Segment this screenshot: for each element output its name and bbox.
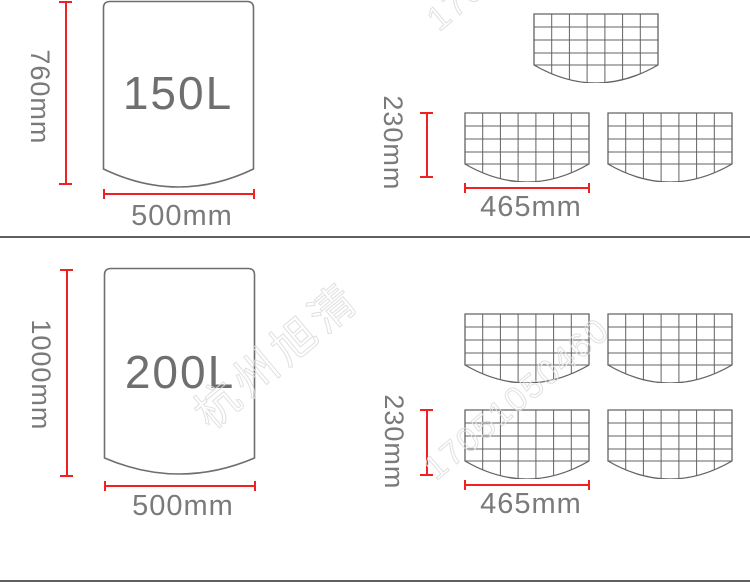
product-size-diagram: 150L 760mm 500mm 230mm [0, 0, 750, 582]
dim-cap [254, 481, 256, 491]
dim-line [66, 269, 68, 477]
dim-line [65, 1, 67, 185]
grid-panel [464, 112, 590, 182]
dim-cap [253, 189, 255, 199]
grid-width-label-465-top: 465mm [451, 192, 611, 224]
width-dim-label-500-top: 500mm [102, 201, 262, 233]
grid-panel [607, 409, 733, 479]
dim-cap [420, 409, 433, 411]
dim-line [464, 484, 590, 486]
dim-cap [59, 1, 72, 3]
dim-cap [103, 189, 105, 199]
dim-line [426, 112, 428, 178]
section-divider [0, 236, 750, 238]
grid-panel [607, 112, 733, 182]
dim-line [104, 485, 256, 487]
grid-height-label-230-top: 230mm [377, 93, 407, 193]
grid-width-label-465-bottom: 465mm [451, 489, 611, 521]
width-dim-label-500-bottom: 500mm [103, 491, 263, 523]
dim-cap [104, 481, 106, 491]
dim-line [103, 193, 255, 195]
grid-panel [533, 13, 659, 83]
volume-label-150l: 150L [103, 67, 253, 119]
dim-cap [60, 475, 73, 477]
dim-line [464, 187, 590, 189]
dim-cap [420, 176, 433, 178]
dim-cap [60, 269, 73, 271]
dim-cap [420, 112, 433, 114]
dim-cap [59, 183, 72, 185]
height-dim-label-760: 760mm [24, 47, 54, 147]
height-dim-label-1000: 1000mm [25, 315, 55, 435]
